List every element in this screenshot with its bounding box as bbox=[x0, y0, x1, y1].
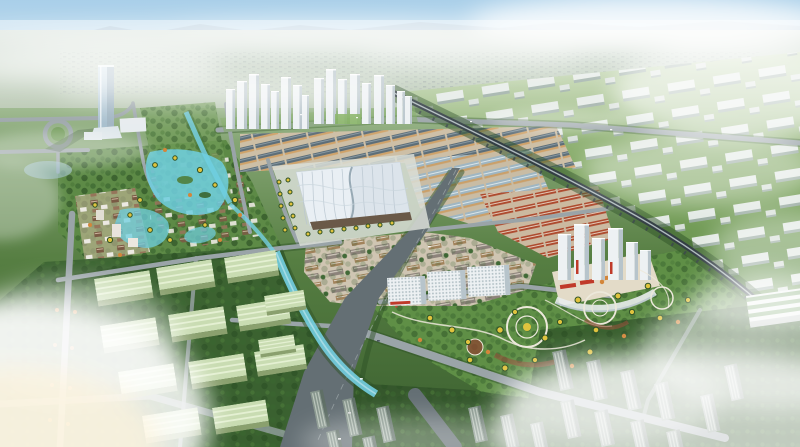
aerial-render bbox=[0, 0, 800, 447]
masterplan-scene bbox=[0, 0, 800, 447]
